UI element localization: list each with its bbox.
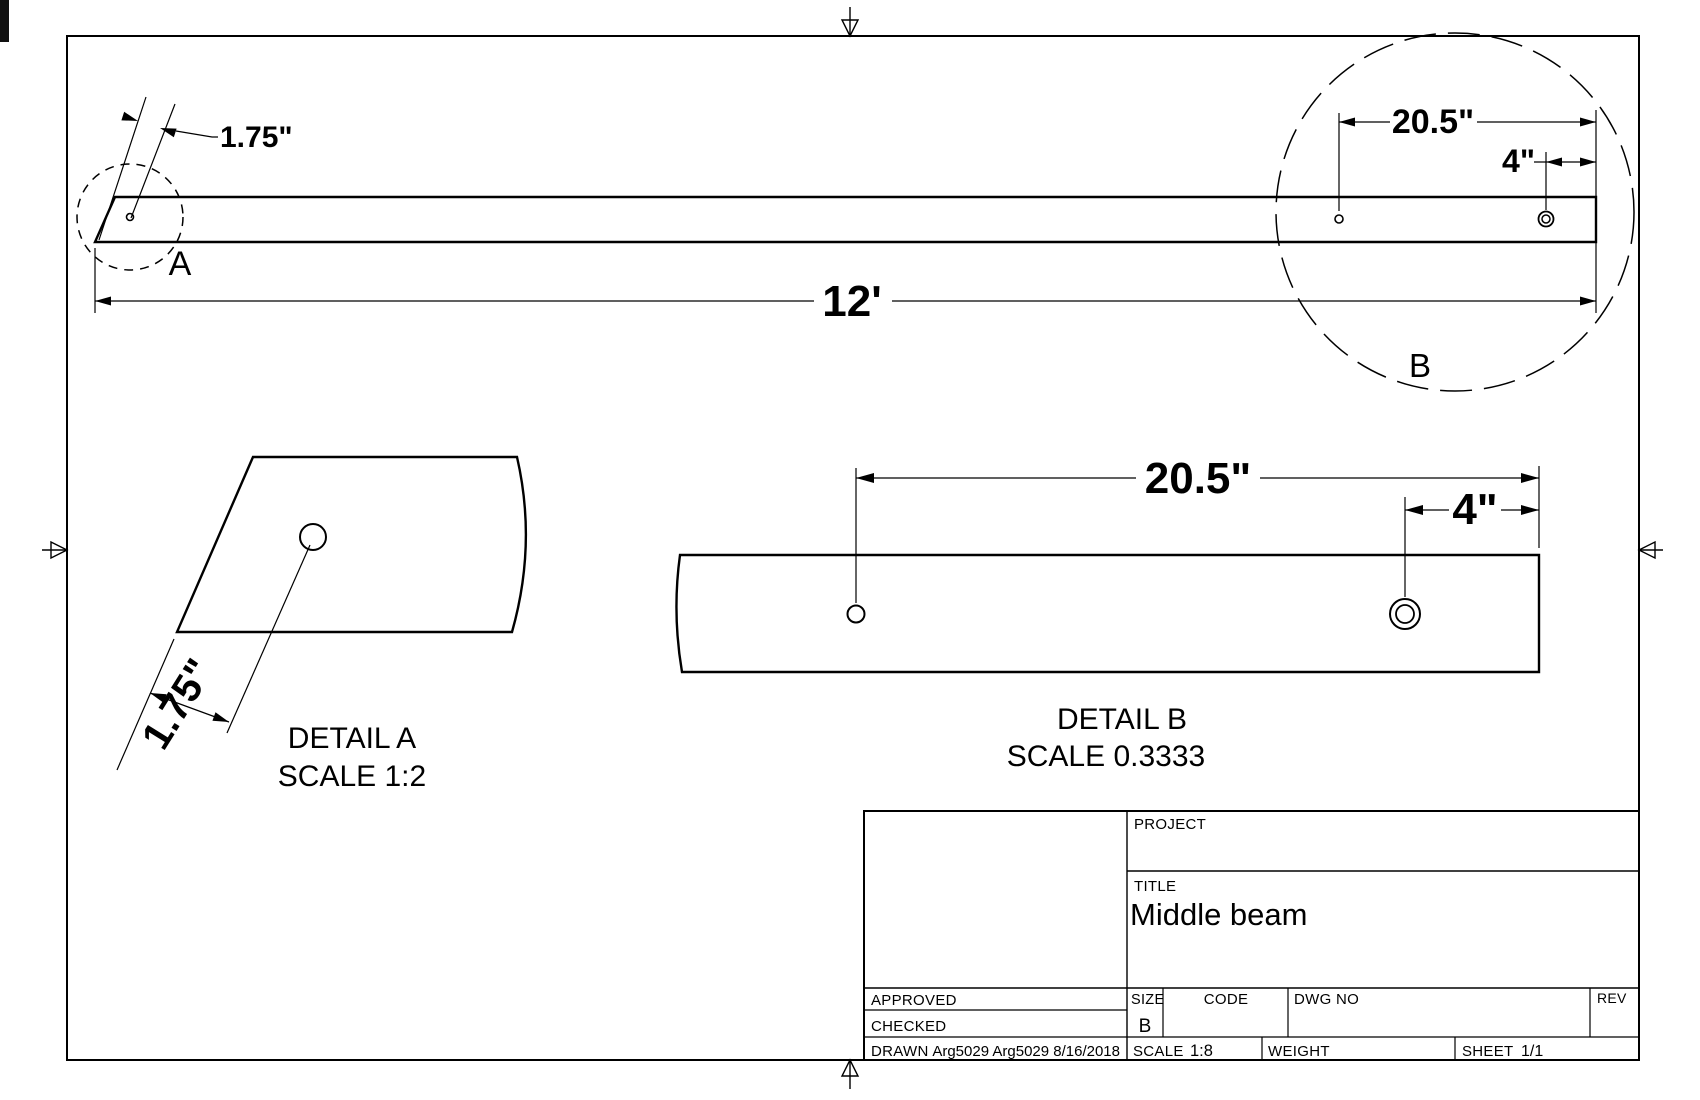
rev-label: REV — [1597, 990, 1627, 1006]
beam-hole-mid — [1335, 215, 1343, 223]
detail-a-view: 1.75" DETAIL A SCALE 1:2 — [117, 457, 526, 793]
dim-text-hole-end: 4" — [1502, 143, 1535, 179]
sheet-frame — [0, 0, 1663, 1089]
size-value: B — [1139, 1016, 1152, 1037]
dim-text-hole-offset: 1.75" — [220, 121, 293, 154]
drawing-border — [67, 36, 1639, 1060]
project-label: PROJECT — [1134, 816, 1206, 833]
left-edge-marker — [42, 542, 67, 558]
detail-b-hole-end-inner — [1396, 605, 1414, 623]
dim-overall-length: 12' — [95, 242, 1596, 326]
title-label: TITLE — [1134, 878, 1176, 895]
dim-arrow — [1580, 118, 1596, 127]
dim-arrow — [121, 112, 139, 126]
detail-b-view: 20.5" 4" DETAIL B SCALE 0.3333 — [676, 454, 1539, 773]
title-value: Middle beam — [1130, 897, 1307, 932]
dim-arrow — [212, 712, 230, 726]
title-block: PROJECT TITLE Middle beam APPROVED CHECK… — [864, 811, 1639, 1060]
dim-arrow — [1339, 118, 1355, 127]
top-edge-marker — [842, 7, 858, 36]
bottom-edge-marker — [842, 1060, 858, 1089]
dim-text-hole-spacing: 20.5" — [1392, 103, 1474, 141]
dim-arrow — [1405, 505, 1423, 515]
code-label: CODE — [1204, 991, 1249, 1008]
detail-b-scale: SCALE 0.3333 — [1007, 740, 1205, 773]
scale-label: SCALE — [1133, 1043, 1184, 1060]
drawing-sheet: A B 1.75" 20.5" 4" — [0, 0, 1700, 1100]
right-edge-marker — [1639, 542, 1663, 558]
detail-a-hole-leader — [227, 545, 310, 733]
dim-hole-spacing-detail-b: 20.5" — [856, 454, 1539, 603]
dim-hole-spacing-top: 20.5" — [1339, 103, 1596, 211]
dim-arrow — [1521, 473, 1539, 483]
beam-outline — [95, 197, 1596, 242]
detail-b-hole-end-outer — [1390, 599, 1420, 629]
scale-value: 1:8 — [1190, 1042, 1213, 1060]
dim-arrow — [1580, 297, 1596, 306]
detail-a-scale: SCALE 1:2 — [278, 760, 426, 793]
detail-a-title: DETAIL A — [288, 722, 416, 755]
detail-b-title: DETAIL B — [1057, 703, 1187, 736]
beam-hole-end-outer — [1539, 212, 1554, 227]
detail-b-outline — [676, 555, 1539, 672]
dim-hole-offset-top: 1.75" — [99, 97, 293, 240]
cad-canvas: A B 1.75" 20.5" 4" — [0, 0, 1700, 1100]
detail-marker-b-label: B — [1409, 347, 1431, 384]
main-beam-view: A B 1.75" 20.5" 4" — [77, 33, 1634, 391]
drawn-value: Arg5029 Arg5029 8/16/2018 — [932, 1043, 1120, 1060]
weight-label: WEIGHT — [1268, 1043, 1330, 1060]
corner-mark — [0, 0, 9, 42]
detail-b-hole-mid — [848, 606, 865, 623]
detail-b-dim-spacing-text: 20.5" — [1145, 454, 1252, 503]
detail-circle-b — [1276, 33, 1634, 391]
dim-arrow — [159, 124, 177, 138]
sheet-label: SHEET — [1462, 1043, 1514, 1060]
title-block-border — [864, 811, 1639, 1060]
detail-circle-a — [77, 164, 183, 270]
beam-hole-end-inner — [1542, 215, 1550, 223]
dim-arrow — [95, 297, 111, 306]
checked-label: CHECKED — [871, 1018, 946, 1035]
dim-hole-end-top: 4" — [1502, 143, 1596, 210]
dim-arrow — [1546, 158, 1562, 167]
size-label: SIZE — [1131, 992, 1164, 1008]
approved-label: APPROVED — [871, 992, 957, 1009]
dim-arrow — [856, 473, 874, 483]
detail-a-dim-text: 1.75" — [134, 651, 223, 756]
detail-b-dim-end-text: 4" — [1452, 485, 1497, 534]
detail-a-hole — [300, 524, 326, 550]
dim-text-overall-length: 12' — [822, 277, 881, 326]
sheet-value: 1/1 — [1521, 1043, 1543, 1060]
detail-marker-a-label: A — [169, 245, 192, 283]
drawn-label: DRAWN — [871, 1043, 929, 1060]
dwg-no-label: DWG NO — [1294, 991, 1359, 1008]
detail-a-outline — [177, 457, 526, 632]
dim-arrow — [1580, 158, 1596, 167]
dim-hole-end-detail-b: 4" — [1405, 485, 1539, 597]
dim-arrow — [1521, 505, 1539, 515]
